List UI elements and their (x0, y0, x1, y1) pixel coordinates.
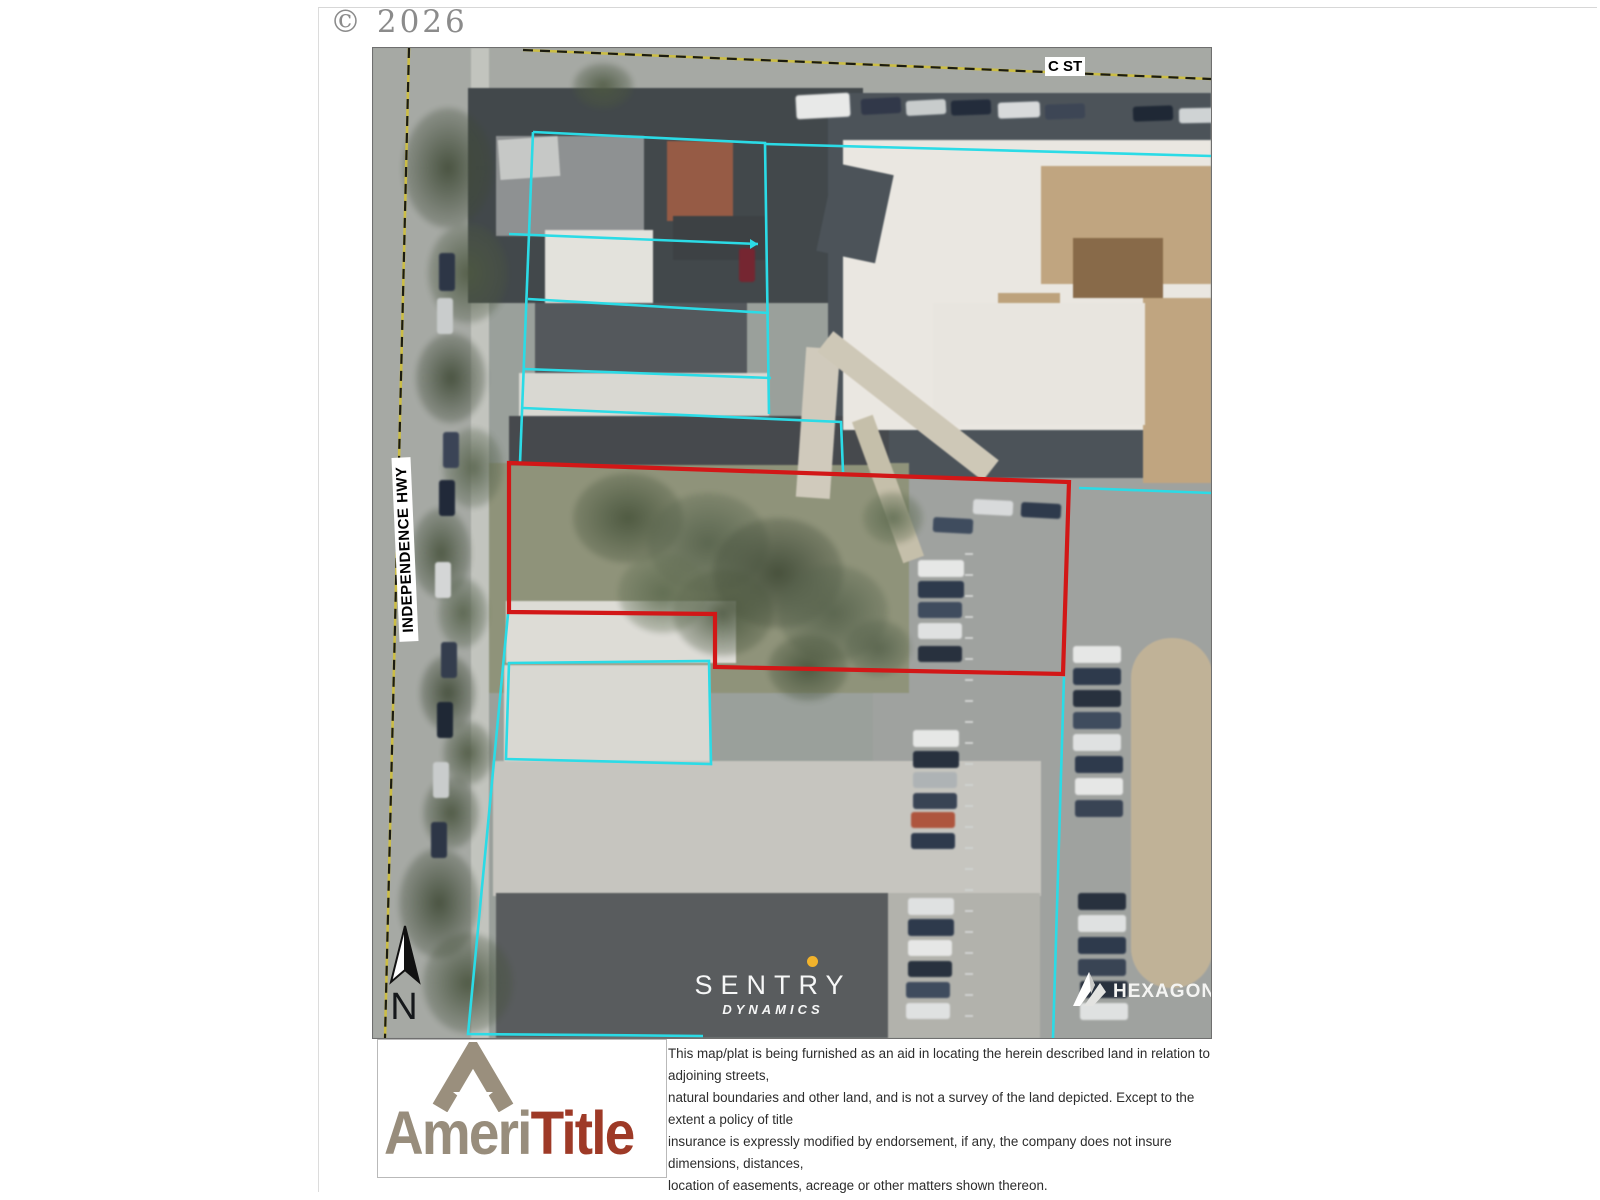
parked-car (1073, 646, 1121, 663)
parked-car (918, 646, 962, 662)
watermark-dot (807, 956, 818, 967)
disclaimer-line: insurance is expressly modified by endor… (668, 1131, 1228, 1175)
parked-car (918, 581, 964, 598)
parked-car (443, 432, 459, 468)
parked-car (1078, 893, 1126, 910)
title-text: Title (531, 1099, 634, 1167)
disclaimer-line: location of easements, acreage or other … (668, 1175, 1228, 1197)
parked-car (998, 101, 1041, 118)
parked-car (906, 982, 950, 998)
aerial-plat-map: C ST INDEPENDENCE HWY N SENTRY DYNAMICS … (372, 47, 1212, 1039)
photo-patch (535, 303, 747, 377)
tree (768, 635, 848, 701)
parked-car (933, 517, 974, 534)
parked-car (913, 751, 959, 768)
parked-car (951, 99, 991, 115)
parked-car (1075, 778, 1123, 795)
hexagon-text: HEXAGON (1113, 981, 1212, 1003)
north-arrow-white-half (391, 926, 405, 982)
north-arrow-black-half (405, 926, 419, 982)
parked-car (906, 99, 947, 116)
amerititle-wordmark: AmeriTitle (384, 1098, 633, 1168)
copyright-text: © 2026 (330, 4, 468, 40)
dynamics-text: DYNAMICS (668, 1002, 878, 1017)
parked-car (795, 93, 850, 120)
photo-patch (1143, 298, 1211, 483)
photo-patch (965, 889, 973, 891)
parked-car (973, 499, 1014, 516)
parked-car (1179, 108, 1212, 124)
photo-patch (504, 665, 710, 761)
parked-car (906, 1003, 950, 1019)
photo-patch (965, 994, 973, 996)
parked-car (908, 919, 954, 936)
parked-car (1133, 105, 1173, 121)
parked-car (439, 253, 455, 291)
parked-car (1073, 734, 1121, 751)
photo-patch (965, 868, 973, 870)
photo-patch (965, 637, 973, 639)
tree (618, 553, 708, 633)
parked-car (913, 772, 957, 788)
north-arrow: N (381, 920, 431, 1035)
photo-patch (498, 136, 561, 180)
parked-car (1021, 502, 1062, 519)
parked-car (739, 248, 755, 282)
photo-patch (1131, 638, 1212, 988)
parked-car (437, 298, 453, 334)
tree (863, 492, 923, 544)
parked-car (1073, 690, 1121, 707)
photo-patch (965, 595, 973, 597)
photo-patch (965, 658, 973, 660)
photo-patch (965, 616, 973, 618)
photo-patch (1073, 238, 1163, 298)
tree (423, 933, 513, 1033)
parked-car (435, 562, 451, 598)
parked-car (918, 560, 964, 577)
photo-patch (965, 763, 973, 765)
parked-car (908, 961, 952, 977)
tree (403, 108, 493, 228)
parked-car (918, 623, 962, 639)
amerititle-logo-box: AmeriTitle (377, 1039, 667, 1178)
parked-car (1075, 756, 1123, 773)
parked-car (908, 898, 954, 915)
parked-car (908, 940, 952, 956)
parked-car (911, 812, 955, 828)
photo-patch (493, 761, 1041, 896)
photo-patch (965, 574, 973, 576)
parked-car (918, 602, 962, 618)
photo-patch (965, 826, 973, 828)
photo-patch (519, 373, 769, 419)
tree (573, 63, 633, 109)
parked-car (1075, 800, 1123, 817)
hexagon-credit: HEXAGON (1067, 966, 1207, 1012)
map-disclaimer: This map/plat is being furnished as an a… (668, 1043, 1228, 1197)
parked-car (1073, 668, 1121, 685)
photo-patch (965, 805, 973, 807)
photo-patch (965, 973, 973, 975)
photo-patch (965, 721, 973, 723)
photo-patch (965, 700, 973, 702)
parked-car (1078, 937, 1126, 954)
parked-car (433, 762, 449, 798)
photo-patch (667, 141, 733, 221)
photo-patch (965, 679, 973, 681)
parked-car (437, 702, 453, 738)
parked-car (1078, 915, 1126, 932)
photo-patch (965, 742, 973, 744)
tree (416, 333, 486, 423)
north-label: N (381, 986, 427, 1029)
ameri-text: Ameri (384, 1099, 531, 1167)
parked-car (431, 822, 447, 858)
photo-patch (965, 784, 973, 786)
parked-car (913, 730, 959, 747)
parked-car (1045, 103, 1085, 119)
parked-car (1073, 712, 1121, 729)
photo-patch (545, 230, 653, 304)
photo-patch (965, 847, 973, 849)
parked-car (439, 480, 455, 516)
disclaimer-line: natural boundaries and other land, and i… (668, 1087, 1228, 1131)
street-label-c-st: C ST (1045, 57, 1085, 76)
parked-car (913, 793, 957, 809)
photo-patch (965, 910, 973, 912)
aerial-photo (373, 48, 1211, 1038)
disclaimer-line: This map/plat is being furnished as an a… (668, 1043, 1228, 1087)
sentry-text: SENTRY (668, 970, 878, 1001)
photo-patch (965, 952, 973, 954)
photo-patch (965, 931, 973, 933)
photo-patch (965, 1015, 973, 1017)
tree (845, 620, 911, 676)
parked-car (861, 97, 902, 115)
parked-car (441, 642, 457, 678)
hexagon-icon (1067, 966, 1111, 1012)
sentry-watermark: SENTRY DYNAMICS (668, 970, 878, 1017)
photo-patch (933, 303, 1145, 425)
parked-car (911, 833, 955, 849)
photo-patch (965, 553, 973, 555)
